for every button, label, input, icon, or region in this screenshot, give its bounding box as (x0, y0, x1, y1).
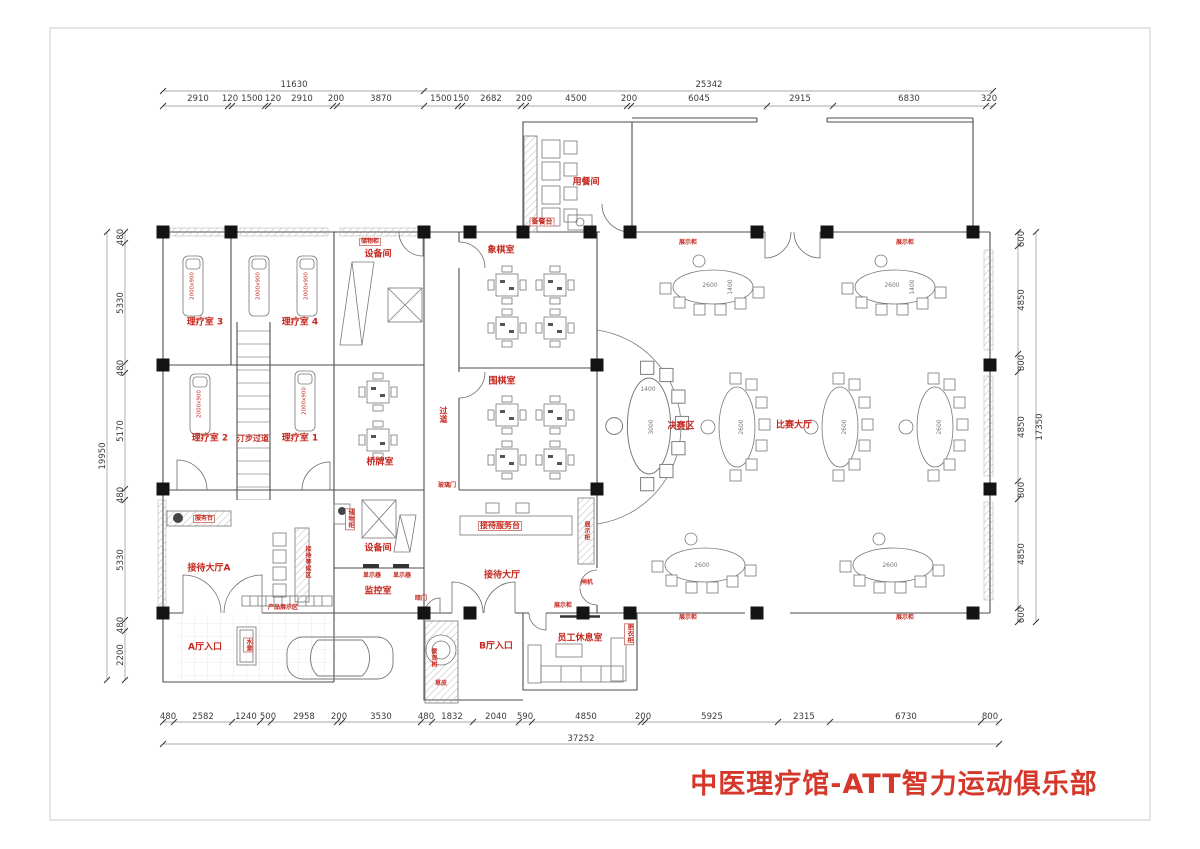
room-label-corridor: 过道 (439, 407, 447, 424)
room-label-therapy3: 理疗室 3 (187, 319, 223, 328)
dim-top-7: 1500 (430, 95, 452, 104)
room-label-hall-a-entrance: A厅入口 (188, 644, 222, 653)
dim-bottom-15: 6730 (895, 713, 917, 722)
dim-top-8: 150 (453, 95, 469, 104)
dim-top-15: 6830 (898, 95, 920, 104)
room-label-monitor-room: 监控室 (364, 588, 391, 597)
kidney-size-1: 2600 (739, 419, 745, 434)
dim-top-0: 2910 (187, 95, 209, 104)
dim-top-overall-0: 11630 (280, 81, 307, 90)
dim-top-3: 120 (265, 95, 281, 104)
dim-bottom-1: 2582 (192, 713, 214, 722)
dim-left-1: 5330 (117, 292, 126, 314)
dim-top-6: 3870 (370, 95, 392, 104)
dim-top-4: 2910 (291, 95, 313, 104)
kidney-size-3: 2600 (937, 419, 943, 434)
room-label-dining: 用餐间 (572, 179, 599, 188)
dim-bottom-overall: 37252 (567, 735, 594, 744)
ann-monitor-screen-2: 显示器 (393, 573, 411, 579)
drawing-sheet: 11630 25342 2910 120 1500 120 2910 200 3… (0, 0, 1200, 849)
dim-right-overall: 17350 (1036, 413, 1045, 440)
dim-right-3: 4850 (1018, 416, 1027, 438)
ann-monitor-screen-1: 显示器 (363, 573, 381, 579)
dim-bottom-5: 200 (331, 713, 347, 722)
dim-bottom-2: 1240 (235, 713, 257, 722)
bed-size-4: 2000x900 (197, 390, 203, 418)
dim-bottom-0: 480 (160, 713, 176, 722)
ann-grass: 草皮 (435, 681, 447, 687)
ann-landscape-tree: 景观树 (430, 648, 436, 668)
oval-size-4: 2600 (882, 563, 897, 569)
dim-left-0: 480 (117, 229, 126, 245)
dim-left-6: 480 (117, 617, 126, 633)
dim-top-12: 200 (621, 95, 637, 104)
ann-glass-door: 玻璃门 (438, 483, 456, 489)
ann-storage-cabinet-1: 储物柜 (345, 508, 355, 530)
ann-waiting-area: 接待等候区 (304, 546, 310, 579)
ann-display-cab-1: 展示柜 (679, 240, 697, 246)
dim-bottom-4: 2958 (293, 713, 315, 722)
dim-bottom-3: 500 (260, 713, 276, 722)
dim-left-5: 5330 (117, 549, 126, 571)
room-label-match-hall: 比赛大厅 (776, 422, 812, 431)
finals-table-size: 3000 (649, 419, 655, 434)
oval-size-2: 2600 (884, 283, 899, 289)
dim-right-4: 800 (1018, 482, 1027, 498)
dim-bottom-7: 480 (418, 713, 434, 722)
ann-display-cab-3: 展示柜 (679, 615, 697, 621)
dim-top-16: 320 (981, 95, 997, 104)
stepping-path-hatch (238, 322, 270, 500)
ann-storage-cabinet-2: 储物柜 (359, 238, 381, 246)
dim-bottom-13: 5925 (701, 713, 723, 722)
room-label-reception-desk: 接待服务台 (478, 521, 522, 531)
ann-hidden-door: 暗门 (415, 596, 427, 602)
oval-depth-2: 1400 (910, 279, 916, 294)
dim-top-9: 2682 (480, 95, 502, 104)
dim-top-11: 4500 (565, 95, 587, 104)
dim-bottom-16: 800 (982, 713, 998, 722)
room-label-bridge: 桥牌室 (366, 459, 393, 468)
room-label-finals-area: 决赛区 (667, 423, 694, 432)
ann-display-strip: 展示柜 (583, 521, 589, 541)
room-label-chess: 象棋室 (487, 247, 514, 256)
dim-top-2: 1500 (241, 95, 263, 104)
ann-display-cab-5: 展示柜 (554, 603, 572, 609)
dim-top-13: 6045 (688, 95, 710, 104)
dim-bottom-9: 2040 (485, 713, 507, 722)
dim-bottom-11: 4850 (575, 713, 597, 722)
dim-left-2: 480 (117, 360, 126, 376)
ann-display-cab-2: 展示柜 (896, 240, 914, 246)
dim-top-10: 200 (516, 95, 532, 104)
ann-locker: 更衣柜 (624, 623, 634, 645)
finals-table-depth: 1400 (640, 387, 655, 393)
bed-size-5: 2000x900 (302, 387, 308, 415)
ann-product-display: 产品展示区 (268, 605, 298, 611)
room-label-equipment-top: 设备间 (364, 251, 391, 260)
dim-left-7: 2200 (117, 644, 126, 666)
room-label-equipment-2: 设备间 (364, 545, 391, 554)
bed-size-3: 2000x900 (304, 272, 310, 300)
ann-service-counter: 服务台 (193, 515, 215, 523)
dim-top-1: 120 (222, 95, 238, 104)
dim-right-2: 800 (1018, 355, 1027, 371)
dim-bottom-8: 1832 (441, 713, 463, 722)
room-label-staff-lounge: 员工休息室 (557, 635, 602, 644)
dim-right-1: 4850 (1018, 289, 1027, 311)
ann-display-cab-4: 展示柜 (896, 615, 914, 621)
room-label-therapy4: 理疗室 4 (282, 319, 318, 328)
dim-right-5: 4850 (1018, 543, 1027, 565)
bed-size-1: 2000x900 (190, 272, 196, 300)
room-label-therapy1: 理疗室 1 (282, 435, 318, 444)
oval-size-1: 2600 (702, 283, 717, 289)
dim-top-5: 200 (328, 95, 344, 104)
dim-top-14: 2915 (789, 95, 811, 104)
bed-size-2: 2000x900 (256, 272, 262, 300)
dim-left-4: 480 (117, 487, 126, 503)
room-label-go: 围棋室 (488, 378, 515, 387)
dim-right-0: 600 (1018, 231, 1027, 247)
oval-size-3: 2600 (694, 563, 709, 569)
room-label-pantry: 备餐台 (530, 218, 555, 227)
ann-water-feature: 水景 (243, 638, 253, 653)
kidney-size-2: 2600 (842, 419, 848, 434)
dim-bottom-10: 590 (517, 713, 533, 722)
dim-top-overall-1: 25342 (695, 81, 722, 90)
room-label-reception-a: 接待大厅A (188, 565, 231, 574)
room-label-reception-hall: 接待大厅 (484, 572, 520, 581)
drawing-title: 中医理疗馆-ATT智力运动俱乐部 (688, 762, 1100, 801)
dim-bottom-14: 2315 (793, 713, 815, 722)
room-label-therapy2: 理疗室 2 (192, 435, 228, 444)
room-label-stepping-path: 汀步过道 (237, 435, 269, 443)
dim-bottom-12: 200 (635, 713, 651, 722)
dim-right-6: 600 (1018, 607, 1027, 623)
ann-turnstile: 闸机 (581, 580, 593, 586)
dim-bottom-6: 3530 (370, 713, 392, 722)
room-label-hall-b-entrance: B厅入口 (479, 643, 513, 652)
dim-left-overall: 19950 (99, 442, 108, 469)
oval-depth-1: 1400 (728, 279, 734, 294)
dim-left-3: 5170 (117, 420, 126, 442)
